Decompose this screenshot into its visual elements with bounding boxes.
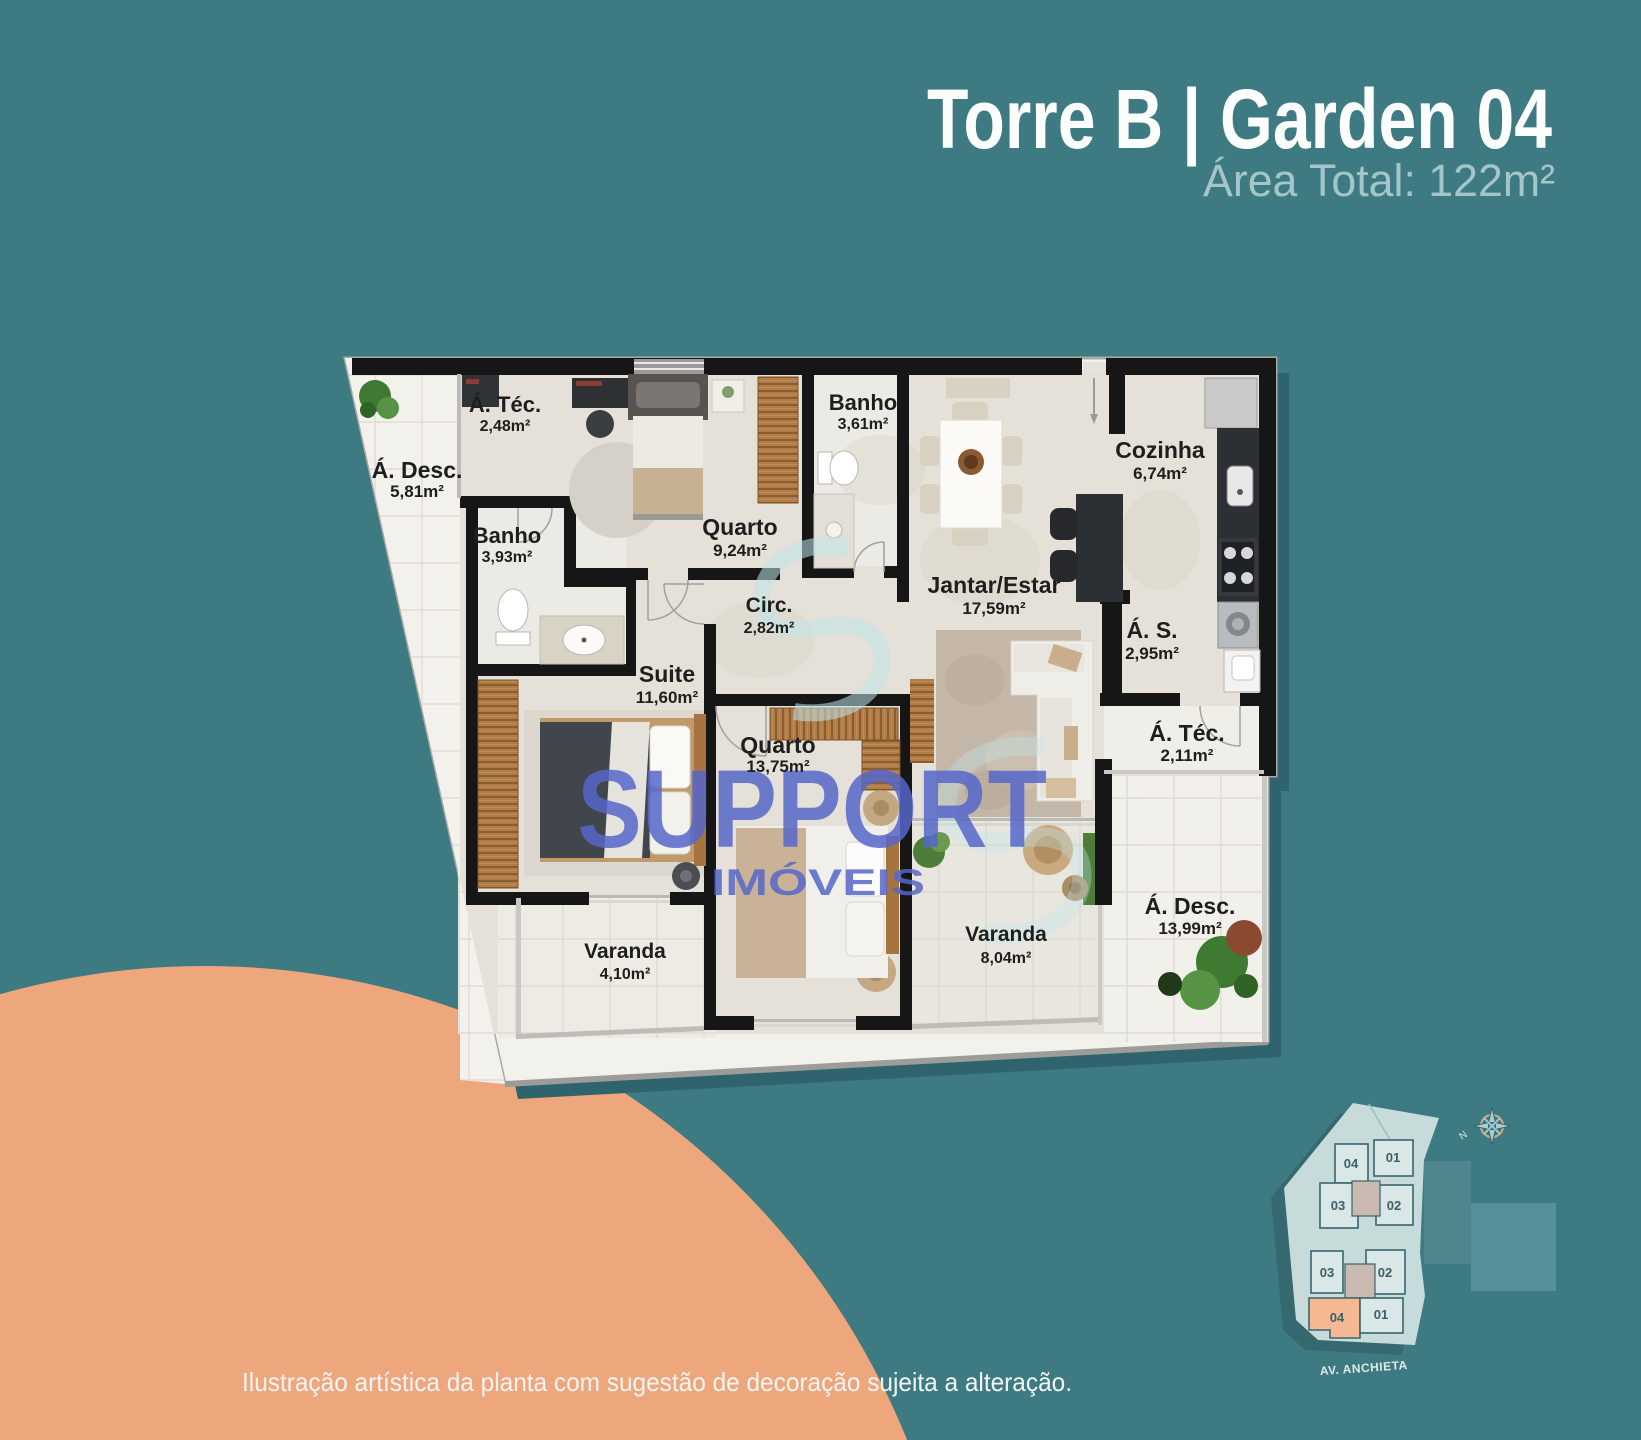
svg-text:02: 02 (1378, 1265, 1392, 1280)
svg-text:Área Total: 122m²: Área Total: 122m² (1203, 155, 1555, 206)
svg-text:Cozinha: Cozinha (1115, 437, 1205, 463)
svg-text:Banho: Banho (473, 523, 541, 548)
svg-text:Ilustração artística da planta: Ilustração artística da planta com suges… (242, 1367, 1072, 1397)
svg-text:02: 02 (1387, 1198, 1401, 1213)
svg-text:Jantar/Estar: Jantar/Estar (928, 572, 1061, 598)
svg-text:03: 03 (1320, 1265, 1334, 1280)
svg-text:2,48m²: 2,48m² (480, 418, 531, 435)
svg-text:Varanda: Varanda (584, 940, 666, 963)
svg-text:01: 01 (1386, 1150, 1400, 1165)
svg-text:IMÓVEIS: IMÓVEIS (711, 861, 925, 903)
svg-text:04: 04 (1330, 1310, 1345, 1325)
svg-text:Quarto: Quarto (740, 732, 815, 758)
svg-text:11,60m²: 11,60m² (636, 688, 699, 707)
svg-text:4,10m²: 4,10m² (600, 966, 651, 983)
svg-text:Torre B | Garden 04: Torre B | Garden 04 (927, 72, 1552, 167)
svg-text:01: 01 (1374, 1307, 1388, 1322)
svg-text:2,11m²: 2,11m² (1161, 746, 1214, 765)
svg-text:13,99m²: 13,99m² (1158, 919, 1222, 938)
svg-text:5,81m²: 5,81m² (390, 482, 444, 501)
svg-text:3,93m²: 3,93m² (482, 549, 533, 566)
svg-text:SUPPORT: SUPPORT (577, 748, 1047, 871)
svg-text:Varanda: Varanda (965, 923, 1047, 946)
svg-text:Á. Téc.: Á. Téc. (469, 392, 541, 417)
svg-text:Banho: Banho (829, 390, 897, 415)
svg-text:03: 03 (1331, 1198, 1345, 1213)
svg-text:3,61m²: 3,61m² (838, 416, 889, 433)
svg-text:17,59m²: 17,59m² (962, 599, 1026, 618)
svg-text:Á. Téc.: Á. Téc. (1149, 719, 1224, 746)
svg-text:Circ.: Circ. (746, 594, 793, 617)
svg-text:2,82m²: 2,82m² (744, 620, 795, 637)
svg-text:04: 04 (1344, 1156, 1359, 1171)
svg-text:9,24m²: 9,24m² (713, 541, 767, 560)
svg-text:Quarto: Quarto (702, 514, 777, 540)
svg-text:Á. Desc.: Á. Desc. (1145, 892, 1236, 919)
svg-text:Á. Desc.: Á. Desc. (372, 456, 463, 483)
svg-text:Á. S.: Á. S. (1126, 616, 1177, 643)
svg-text:6,74m²: 6,74m² (1133, 464, 1187, 483)
svg-text:2,95m²: 2,95m² (1125, 644, 1179, 663)
svg-text:8,04m²: 8,04m² (981, 950, 1032, 967)
svg-text:Suite: Suite (639, 661, 695, 687)
svg-text:13,75m²: 13,75m² (746, 757, 810, 776)
